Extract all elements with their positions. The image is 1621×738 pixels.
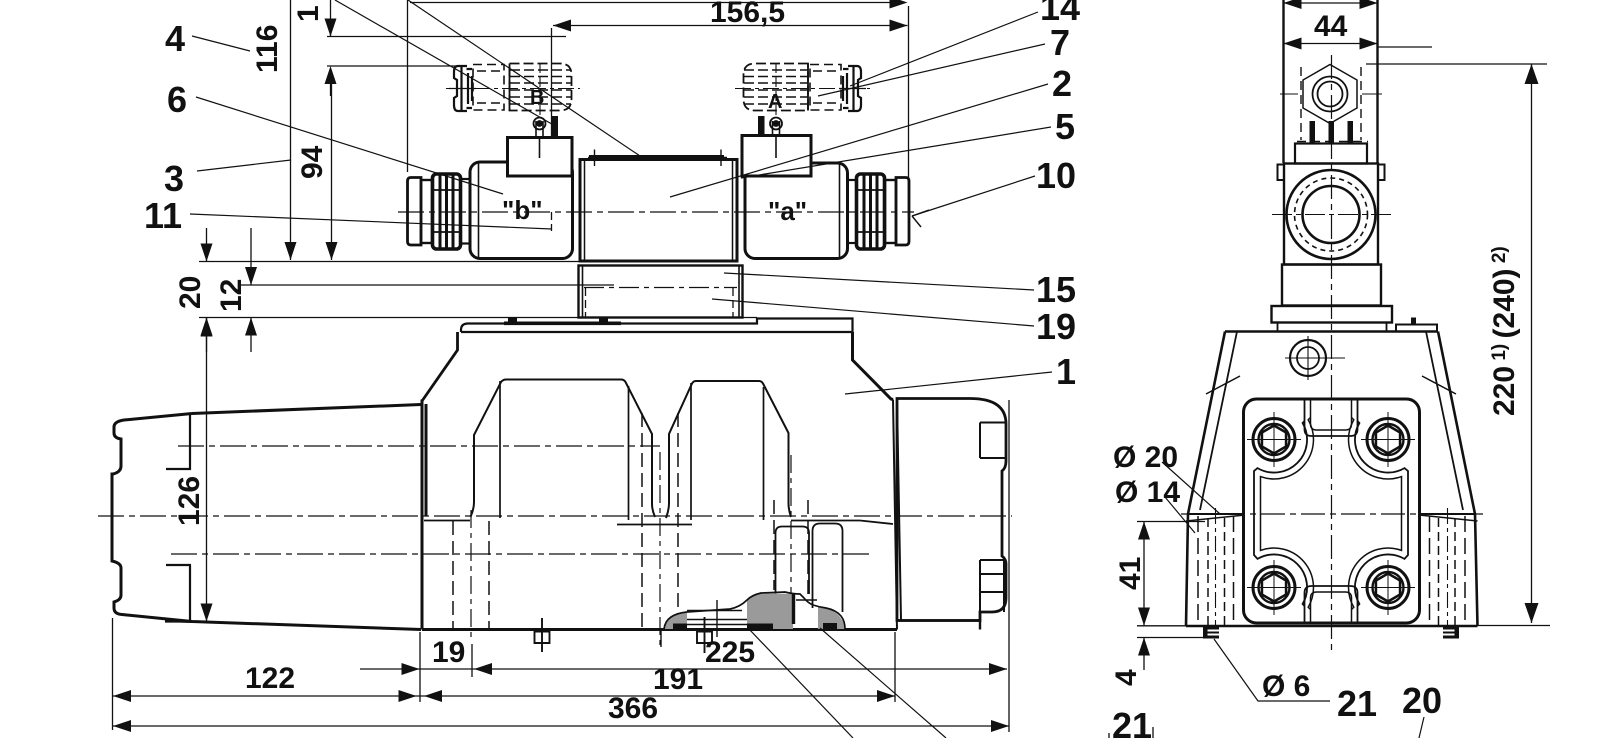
svg-text:1: 1: [1056, 351, 1076, 392]
svg-text:19: 19: [432, 636, 465, 669]
svg-text:41: 41: [1114, 557, 1147, 590]
svg-text:"b": "b": [502, 195, 543, 225]
svg-text:7: 7: [1050, 22, 1070, 63]
svg-text:10: 10: [1036, 155, 1076, 196]
svg-text:4: 4: [165, 18, 185, 59]
svg-text:6: 6: [167, 79, 187, 120]
svg-text:12: 12: [215, 279, 248, 312]
svg-text:21: 21: [1112, 705, 1152, 738]
svg-text:191: 191: [653, 663, 703, 696]
svg-text:A: A: [768, 91, 782, 113]
svg-text:20: 20: [1402, 680, 1442, 721]
svg-text:156,5: 156,5: [710, 0, 785, 29]
svg-text:366: 366: [608, 692, 658, 725]
svg-text:5: 5: [1055, 106, 1075, 147]
svg-text:11: 11: [144, 195, 182, 236]
svg-text:21: 21: [1337, 683, 1377, 724]
svg-text:225: 225: [705, 636, 755, 669]
svg-text:3: 3: [164, 158, 184, 199]
svg-text:4: 4: [1110, 669, 1143, 686]
svg-text:220 1) (240) 2): 220 1) (240) 2): [1488, 246, 1521, 416]
svg-text:44: 44: [1314, 10, 1348, 43]
svg-text:"a": "a": [768, 196, 807, 226]
svg-text:Ø 20: Ø 20: [1113, 441, 1178, 474]
svg-text:19: 19: [1036, 306, 1076, 347]
svg-text:15: 15: [1036, 269, 1076, 310]
svg-text:116: 116: [251, 25, 284, 73]
svg-text:Ø 6: Ø 6: [1262, 670, 1310, 703]
svg-text:126: 126: [173, 476, 206, 526]
svg-text:122: 122: [245, 662, 295, 695]
svg-text:2: 2: [1052, 63, 1072, 104]
svg-text:20: 20: [174, 276, 207, 309]
svg-text:1: 1: [292, 5, 325, 22]
svg-text:94: 94: [296, 145, 329, 179]
